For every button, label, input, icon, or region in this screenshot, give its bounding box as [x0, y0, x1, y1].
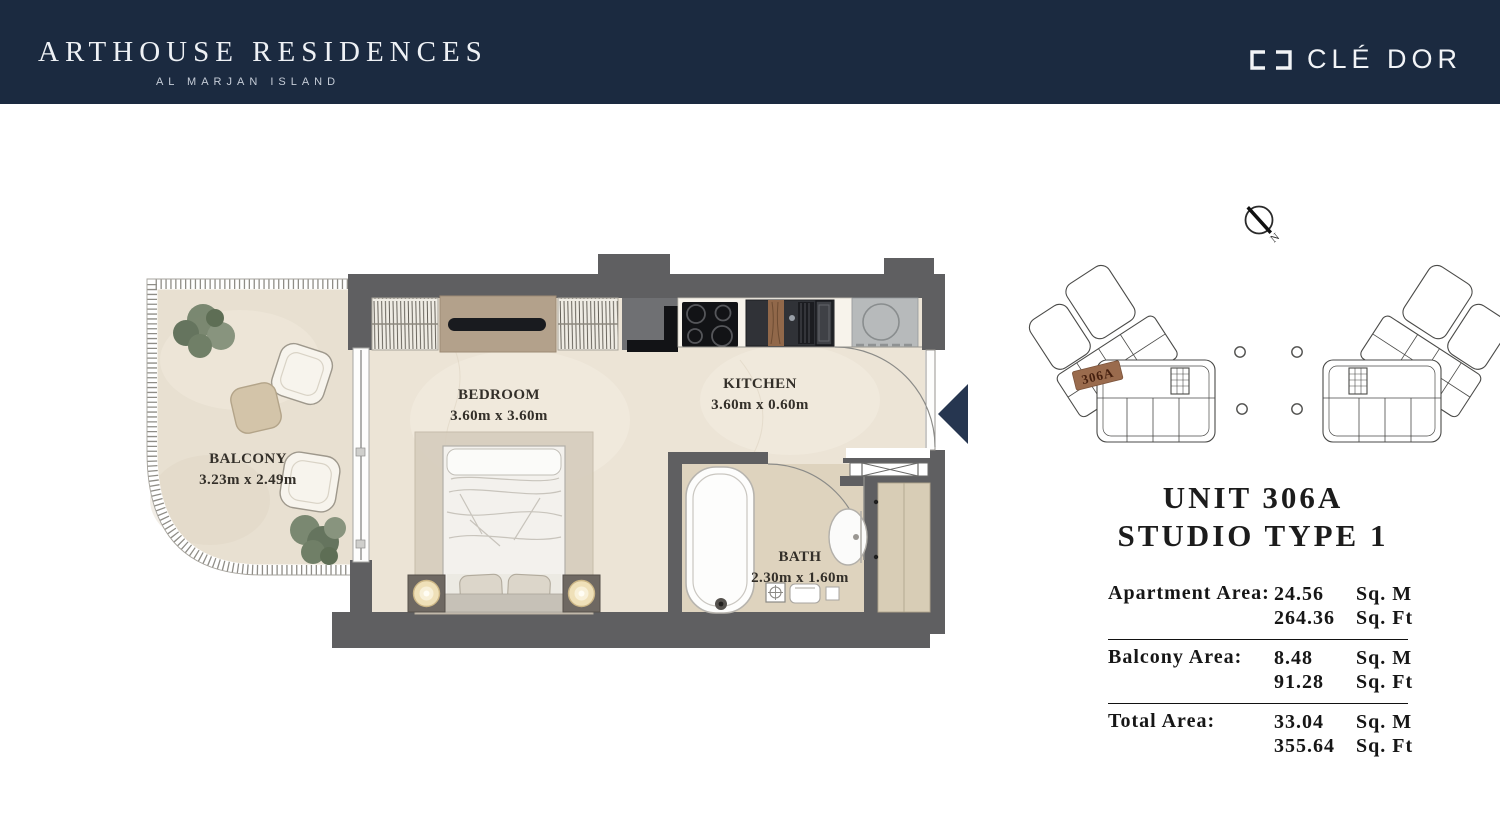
brand-title: ARTHOUSE RESIDENCES — [38, 36, 458, 69]
bathtub-icon — [686, 467, 754, 613]
bed-icon — [443, 446, 565, 612]
balcony-glass-door — [353, 348, 369, 562]
area-label: Total Area: — [1108, 710, 1274, 733]
metric-unit: Sq. M — [1356, 582, 1408, 606]
area-row-apartment: Apartment Area: 24.56 264.36 Sq. M Sq. F… — [1108, 576, 1408, 639]
imperial-unit: Sq. Ft — [1356, 606, 1408, 630]
imperial-unit: Sq. Ft — [1356, 670, 1408, 694]
room-name: KITCHEN — [670, 374, 850, 395]
imperial-value: 91.28 — [1274, 670, 1356, 694]
north-indicator: N — [1246, 206, 1283, 245]
header-bar: ARTHOUSE RESIDENCES AL MARJAN ISLAND CLÉ… — [0, 0, 1500, 104]
room-dims: 3.60m x 3.60m — [409, 406, 589, 427]
area-row-balcony: Balcony Area: 8.48 91.28 Sq. M Sq. Ft — [1108, 639, 1408, 703]
north-label: N — [1268, 231, 1282, 245]
brand-subtitle: AL MARJAN ISLAND — [38, 76, 458, 88]
unit-subtitle: STUDIO TYPE 1 — [1053, 520, 1453, 551]
room-name: BATH — [710, 547, 890, 568]
key-plan-right — [1323, 255, 1500, 442]
imperial-value: 355.64 — [1274, 734, 1356, 758]
bedroom-furniture — [408, 432, 600, 614]
metric-unit: Sq. M — [1356, 710, 1408, 734]
area-row-total: Total Area: 33.04 355.64 Sq. M Sq. Ft — [1108, 703, 1408, 767]
metric-unit: Sq. M — [1356, 646, 1408, 670]
room-name: BALCONY — [158, 449, 338, 470]
key-plan-dots — [1235, 347, 1302, 414]
unit-info-block: UNIT 306A STUDIO TYPE 1 — [1053, 482, 1453, 551]
stove-icon — [682, 302, 738, 347]
kitchen-fixtures — [678, 298, 922, 347]
room-label-kitchen: KITCHEN 3.60m x 0.60m — [670, 374, 850, 416]
area-label: Balcony Area: — [1108, 646, 1274, 669]
room-label-bedroom: BEDROOM 3.60m x 3.60m — [409, 385, 589, 427]
cledor-brackets-icon — [1248, 47, 1294, 73]
entry-arrow-icon — [938, 384, 968, 444]
wardrobe — [372, 296, 618, 352]
area-table: Apartment Area: 24.56 264.36 Sq. M Sq. F… — [1108, 576, 1408, 766]
imperial-unit: Sq. Ft — [1356, 734, 1408, 758]
metric-value: 33.04 — [1274, 710, 1356, 734]
room-dims: 2.30m x 1.60m — [710, 568, 890, 589]
area-label: Apartment Area: — [1108, 582, 1274, 605]
imperial-value: 264.36 — [1274, 606, 1356, 630]
room-dims: 3.23m x 2.49m — [158, 470, 338, 491]
nightstand-lamp-icon — [408, 575, 445, 612]
nightstand-lamp-icon — [563, 575, 600, 612]
balcony-chair — [228, 380, 283, 435]
room-label-balcony: BALCONY 3.23m x 2.49m — [158, 449, 338, 491]
room-name: BEDROOM — [409, 385, 589, 406]
balcony-area — [147, 279, 353, 575]
sink-icon — [852, 298, 918, 347]
metric-value: 24.56 — [1274, 582, 1356, 606]
cledor-logo: CLÉ DOR — [1248, 44, 1462, 75]
key-plan-left: 306A — [1017, 255, 1215, 442]
room-dims: 3.60m x 0.60m — [670, 395, 850, 416]
metric-value: 8.48 — [1274, 646, 1356, 670]
unit-title: UNIT 306A — [1053, 482, 1453, 513]
brand-block: ARTHOUSE RESIDENCES AL MARJAN ISLAND — [38, 36, 458, 88]
kitchen-cabinet — [746, 300, 834, 346]
cledor-logo-text: CLÉ DOR — [1307, 44, 1462, 75]
room-label-bath: BATH 2.30m x 1.60m — [710, 547, 890, 589]
